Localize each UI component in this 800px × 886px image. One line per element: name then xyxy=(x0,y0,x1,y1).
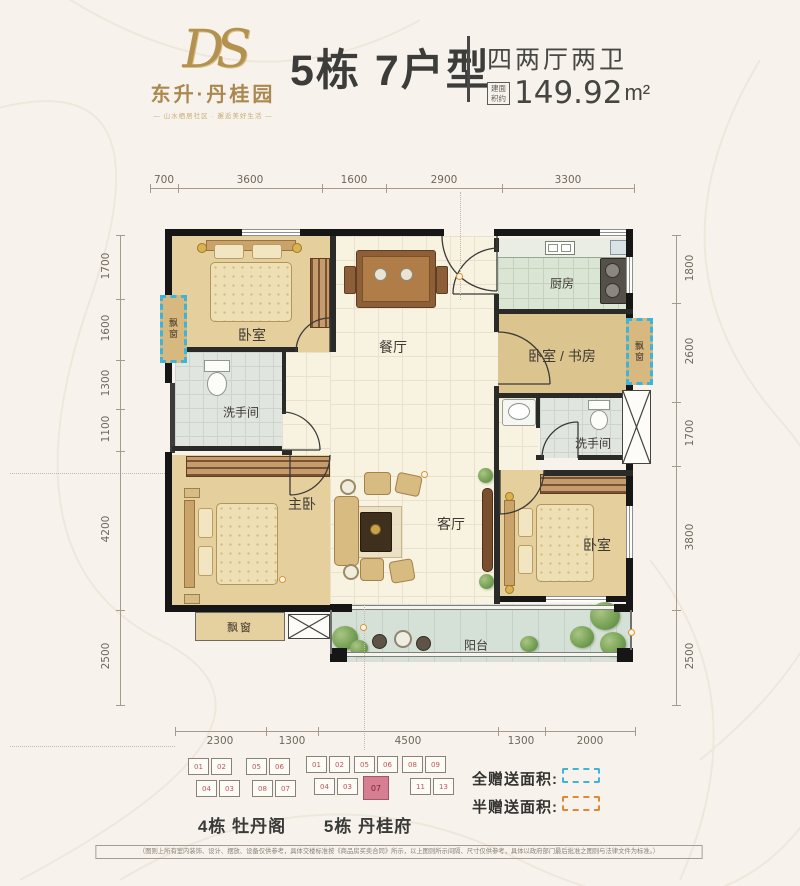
hotspot-dot xyxy=(360,624,367,631)
dim-right-4: 2500 xyxy=(684,638,696,674)
dim-left-1: 1600 xyxy=(100,310,112,346)
unit-box: 11 xyxy=(410,778,431,795)
bay-window-bottom: 飘窗 xyxy=(195,612,285,641)
header-divider xyxy=(467,36,470,102)
brand-tagline: — 山水栖居社区 · 邂逅美好生活 — xyxy=(128,110,298,120)
legend-full-gift-swatch xyxy=(562,768,600,783)
dim-bottom-3: 1300 xyxy=(499,735,543,747)
hotspot-dot xyxy=(456,273,463,280)
room-label-balcony: 阳台 xyxy=(464,637,488,654)
toilet-tank xyxy=(204,360,230,372)
unit-box: 08 xyxy=(252,780,273,797)
plant xyxy=(520,636,538,652)
dining-chair xyxy=(436,266,448,294)
floorplan-flyer: DS 东升·丹桂园 — 山水栖居社区 · 邂逅美好生活 — 5栋 7户型 四两厅… xyxy=(0,0,800,886)
balcony-chair xyxy=(372,634,387,649)
unit-box: 08 xyxy=(402,756,423,773)
bay-window-right: 飘窗 xyxy=(626,318,653,385)
burner xyxy=(605,263,620,278)
unit-box: 05 xyxy=(354,756,375,773)
unit-box: 05 xyxy=(246,758,267,775)
window xyxy=(626,506,633,558)
unit-box: 06 xyxy=(377,756,398,773)
brand-name: 东升·丹桂园 xyxy=(128,78,298,107)
room-label-dining: 餐厅 xyxy=(379,337,407,357)
sink-basin xyxy=(548,244,558,252)
unit-box: 02 xyxy=(211,758,232,775)
unit-box: 04 xyxy=(196,780,217,797)
plant xyxy=(478,468,493,483)
unit-box: 01 xyxy=(188,758,209,775)
dim-left-0: 1700 xyxy=(100,248,112,284)
unit-box: 07 xyxy=(275,780,296,797)
unit-box: 04 xyxy=(314,778,335,795)
area-label-line2: 积约 xyxy=(488,94,509,104)
dining-chair xyxy=(344,266,356,294)
kitchen-appliance xyxy=(610,240,627,255)
pillow xyxy=(252,244,282,259)
hotspot-dot xyxy=(628,629,635,636)
dim-top-4: 3300 xyxy=(546,174,590,186)
dim-bottom-1: 1300 xyxy=(270,735,314,747)
dim-right-1: 2600 xyxy=(684,333,696,369)
plate xyxy=(374,268,387,281)
unit-box: 03 xyxy=(337,778,358,795)
room-label-kitchen: 厨房 xyxy=(550,275,574,292)
sink-basin xyxy=(561,244,571,252)
bed-headboard xyxy=(504,500,515,586)
unit-box: 09 xyxy=(425,756,446,773)
dim-left-5: 2500 xyxy=(100,638,112,674)
pillow xyxy=(198,508,213,538)
ac-platform xyxy=(288,614,330,639)
bedside-lamp xyxy=(505,585,514,594)
building5-name: 5栋 丹桂府 xyxy=(288,812,448,837)
toilet-bowl xyxy=(207,372,227,396)
pillow xyxy=(214,244,244,259)
room-label-bedroom-br: 卧室 xyxy=(583,535,611,555)
hotspot-dot xyxy=(279,576,286,583)
guide-line xyxy=(460,192,461,300)
plant xyxy=(570,626,594,648)
legend-half-gift-swatch xyxy=(562,796,600,811)
dim-bottom-2: 4500 xyxy=(386,735,430,747)
dim-left-3: 1100 xyxy=(100,411,112,447)
logo-monogram: DS xyxy=(128,24,298,76)
bed xyxy=(210,262,292,322)
sofa xyxy=(334,496,359,566)
window xyxy=(546,596,606,602)
armchair xyxy=(364,472,391,495)
window xyxy=(242,229,300,236)
guide-line xyxy=(10,473,165,474)
balcony-sliding-door xyxy=(352,605,614,610)
nightstand xyxy=(184,594,200,604)
dim-right-2: 1700 xyxy=(684,415,696,451)
bay-window-label: 飘窗 xyxy=(167,318,180,340)
dim-bottom-4: 2000 xyxy=(568,735,612,747)
legend-full-gift-label: 全赠送面积: xyxy=(472,768,558,789)
dim-top-3: 2900 xyxy=(422,174,466,186)
unit-box: 03 xyxy=(219,780,240,797)
room-label-master: 主卧 xyxy=(288,494,316,514)
bed-headboard xyxy=(184,500,195,588)
washbasin xyxy=(508,403,530,420)
room-label-bath-left: 洗手间 xyxy=(223,404,259,421)
plate xyxy=(400,268,413,281)
room-label-bath-right: 洗手间 xyxy=(575,435,611,452)
dim-top-2: 1600 xyxy=(332,174,376,186)
dim-top-0: 700 xyxy=(142,174,186,186)
area-label-line1: 建面 xyxy=(488,84,509,94)
area-row: 建面 积约 149.92 m² xyxy=(487,78,650,108)
room-label-study: 卧室 / 书房 xyxy=(528,346,596,366)
wardrobe xyxy=(540,474,628,494)
room-label-living: 客厅 xyxy=(437,514,465,534)
wardrobe xyxy=(186,456,330,477)
unit-box: 02 xyxy=(329,756,350,773)
window xyxy=(600,229,626,236)
bedside-lamp xyxy=(197,243,207,253)
room-label-bedroom-tl: 卧室 xyxy=(238,325,266,345)
area-value: 149.92 xyxy=(514,75,622,111)
legend-half-gift-label: 半赠送面积: xyxy=(472,796,558,817)
toilet-tank xyxy=(588,400,610,410)
armchair xyxy=(360,558,384,581)
side-table xyxy=(343,564,359,580)
dim-right-3: 3800 xyxy=(684,519,696,555)
table-decor xyxy=(370,524,381,535)
balcony-table xyxy=(394,630,412,648)
dim-bottom-0: 2300 xyxy=(198,735,242,747)
unit-box: 13 xyxy=(433,778,454,795)
bay-window-left: 飘窗 xyxy=(160,295,187,363)
bedside-lamp xyxy=(292,243,302,253)
bed xyxy=(216,503,278,585)
unit-box: 01 xyxy=(306,756,327,773)
pillow xyxy=(518,545,533,574)
wardrobe xyxy=(310,258,330,328)
brand-logo: DS 东升·丹桂园 — 山水栖居社区 · 邂逅美好生活 — xyxy=(128,24,298,120)
dim-left-2: 1300 xyxy=(100,365,112,401)
area-unit: m² xyxy=(624,80,650,106)
dim-top-1: 3600 xyxy=(228,174,272,186)
plant xyxy=(479,574,494,589)
dim-right-0: 1800 xyxy=(684,250,696,286)
bedside-lamp xyxy=(505,492,514,501)
window xyxy=(626,257,633,295)
toilet-bowl xyxy=(590,410,608,430)
unit-box-highlighted: 07 xyxy=(363,776,389,800)
side-table xyxy=(340,479,356,495)
layout-spec: 四两厅两卫 xyxy=(487,40,627,76)
unit-type-title: 5栋 7户型 xyxy=(290,36,491,98)
balcony-chair xyxy=(416,636,431,651)
burner xyxy=(605,283,620,298)
hotspot-dot xyxy=(421,471,428,478)
tv-cabinet xyxy=(482,488,493,572)
bay-window-label: 飘窗 xyxy=(633,341,646,363)
pillow xyxy=(518,508,533,537)
guide-line xyxy=(10,746,175,747)
disclaimer-text: （图则上所有室内装饰、设计、摆放、设备仅供参考，具体交楼标准按《商品房买卖合同》… xyxy=(95,845,702,859)
nightstand xyxy=(184,488,200,498)
ac-platform xyxy=(622,390,651,464)
bay-window-label: 飘窗 xyxy=(227,619,253,635)
unit-box: 06 xyxy=(269,758,290,775)
armchair xyxy=(388,558,415,584)
area-label-box: 建面 积约 xyxy=(487,82,510,105)
dim-left-4: 4200 xyxy=(100,511,112,547)
pillow xyxy=(198,546,213,576)
dining-table-top xyxy=(362,256,430,302)
